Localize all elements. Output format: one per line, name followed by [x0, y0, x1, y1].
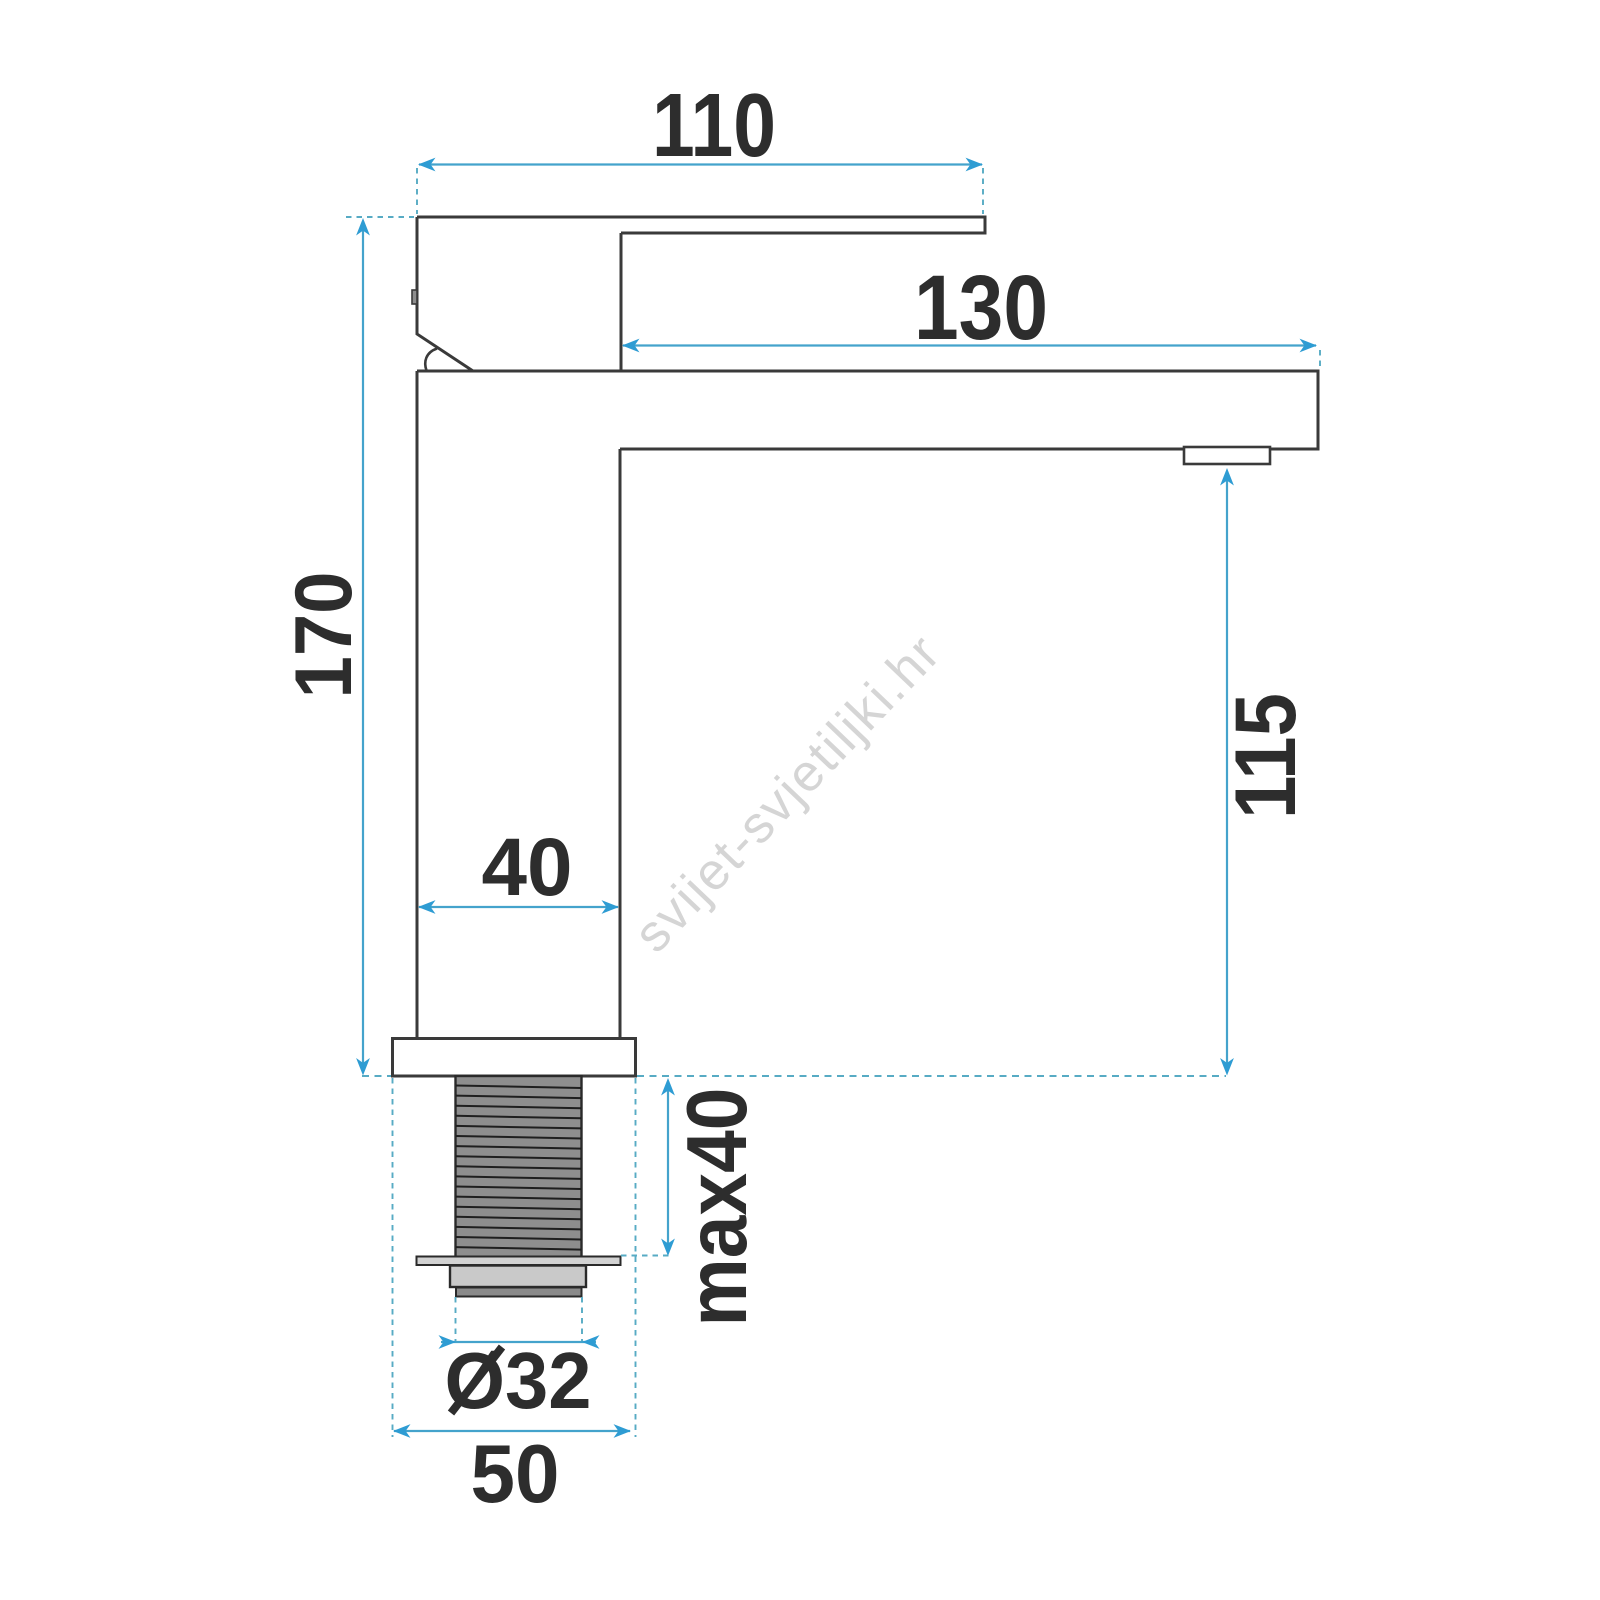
svg-text:110: 110 [652, 76, 776, 176]
svg-text:40: 40 [482, 822, 573, 913]
svg-text:max40: max40 [670, 1088, 765, 1327]
svg-text:Ø32: Ø32 [445, 1336, 592, 1425]
svg-text:170: 170 [279, 572, 369, 699]
svg-text:50: 50 [471, 1427, 560, 1520]
svg-text:115: 115 [1218, 693, 1314, 819]
svg-text:130: 130 [914, 257, 1048, 359]
